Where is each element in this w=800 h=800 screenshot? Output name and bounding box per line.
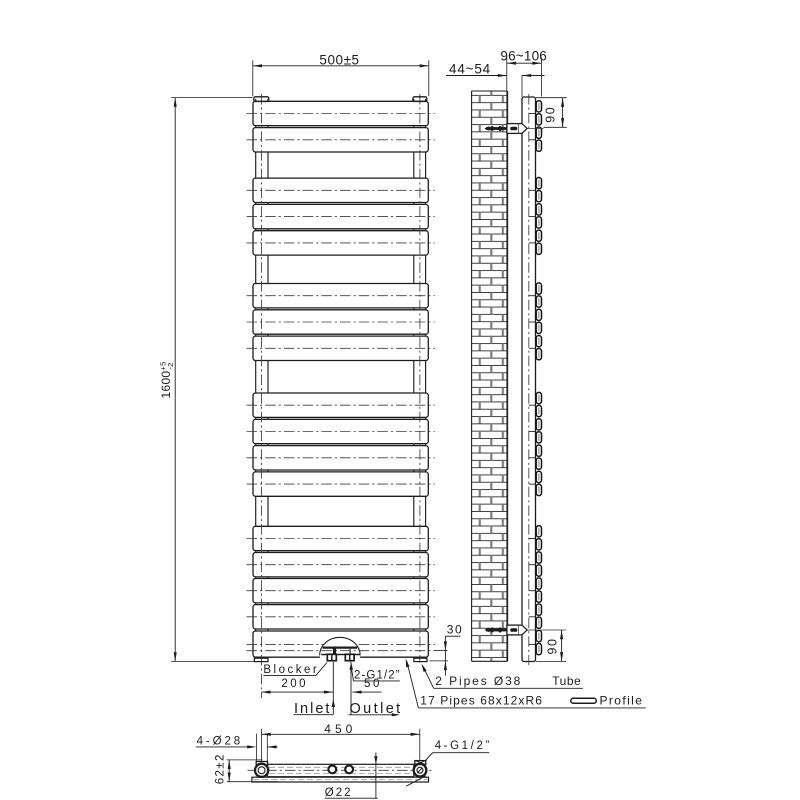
svg-text:Blocker: Blocker [263, 664, 319, 676]
svg-text:Ø22: Ø22 [325, 787, 353, 799]
svg-text:17 Pipes 68x12xR6: 17 Pipes 68x12xR6 [420, 694, 543, 708]
svg-text:90: 90 [546, 638, 560, 655]
svg-text:30: 30 [447, 622, 464, 636]
svg-text:44~54: 44~54 [449, 62, 491, 77]
svg-text:Profile: Profile [600, 694, 644, 708]
svg-text:500±5: 500±5 [319, 52, 359, 67]
svg-text:2-G1/2”: 2-G1/2” [354, 669, 401, 681]
svg-text:96~106: 96~106 [500, 49, 547, 64]
svg-text:Tube: Tube [552, 674, 581, 688]
svg-text:1600+5-2: 1600+5-2 [158, 361, 175, 398]
svg-text:90: 90 [544, 106, 558, 123]
svg-text:200: 200 [281, 678, 308, 690]
svg-text:4-Ø28: 4-Ø28 [197, 736, 243, 748]
svg-text:62±2: 62±2 [214, 753, 226, 784]
svg-text:2 Pipes Ø38: 2 Pipes Ø38 [435, 674, 522, 688]
svg-text:4-G1/2”: 4-G1/2” [435, 740, 492, 752]
